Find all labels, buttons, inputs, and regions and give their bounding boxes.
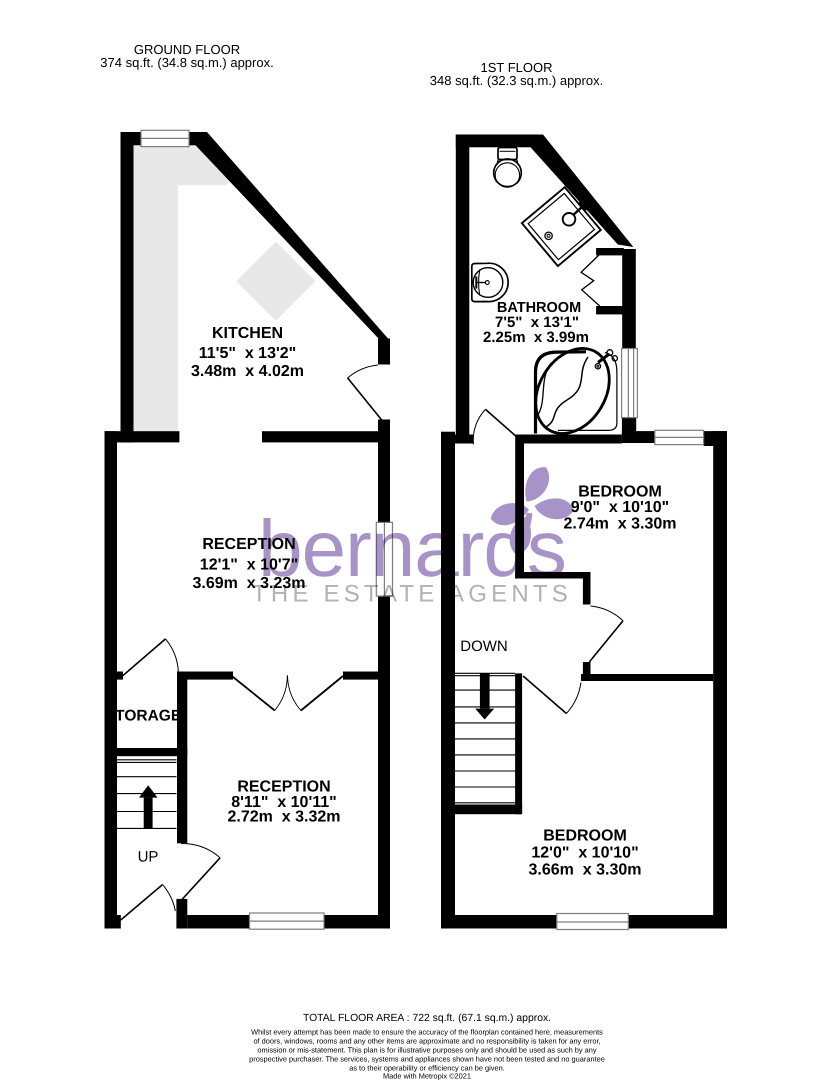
svg-text:of doors, windows, rooms and a: of doors, windows, rooms and any other i…: [253, 1037, 600, 1046]
svg-text:3.66m x 3.30m: 3.66m x 3.30m: [529, 862, 642, 879]
svg-text:TOTAL FLOOR AREA : 722 sq.ft.: TOTAL FLOOR AREA : 722 sq.ft. (67.1 sq.m…: [303, 1013, 551, 1024]
svg-text:BEDROOM: BEDROOM: [578, 484, 662, 501]
svg-text:2.72m x 3.32m: 2.72m x 3.32m: [228, 809, 341, 826]
svg-text:THE ESTATE AGENTS: THE ESTATE AGENTS: [252, 581, 572, 608]
svg-text:3.48m x 4.02m: 3.48m x 4.02m: [191, 363, 304, 380]
svg-text:9'0" x 10'10": 9'0" x 10'10": [571, 499, 669, 516]
svg-text:UP: UP: [138, 849, 159, 866]
svg-text:2.74m x 3.30m: 2.74m x 3.30m: [564, 516, 677, 533]
svg-text:DOWN: DOWN: [460, 638, 508, 655]
svg-text:prospective purchaser. The ser: prospective purchaser. The services, sys…: [249, 1055, 605, 1064]
svg-text:374 sq.ft. (34.8 sq.m.) approx: 374 sq.ft. (34.8 sq.m.) approx.: [100, 55, 273, 70]
svg-text:RECEPTION: RECEPTION: [237, 779, 330, 796]
svg-text:KITCHEN: KITCHEN: [212, 325, 283, 342]
svg-text:11'5" x 13'2": 11'5" x 13'2": [199, 345, 297, 362]
svg-text:Whilst every attempt has been: Whilst every attempt has been made to en…: [251, 1028, 603, 1037]
svg-text:2.25m x 3.99m: 2.25m x 3.99m: [483, 329, 589, 346]
svg-text:omission or mis-statement. Thi: omission or mis-statement. This plan is …: [257, 1046, 596, 1055]
svg-text:BEDROOM: BEDROOM: [543, 828, 627, 845]
svg-text:12'0" x 10'10": 12'0" x 10'10": [531, 845, 638, 862]
svg-text:348 sq.ft. (32.3 sq.m.) approx: 348 sq.ft. (32.3 sq.m.) approx.: [430, 73, 603, 88]
svg-text:Made with Metropix ©2021: Made with Metropix ©2021: [383, 1072, 471, 1081]
